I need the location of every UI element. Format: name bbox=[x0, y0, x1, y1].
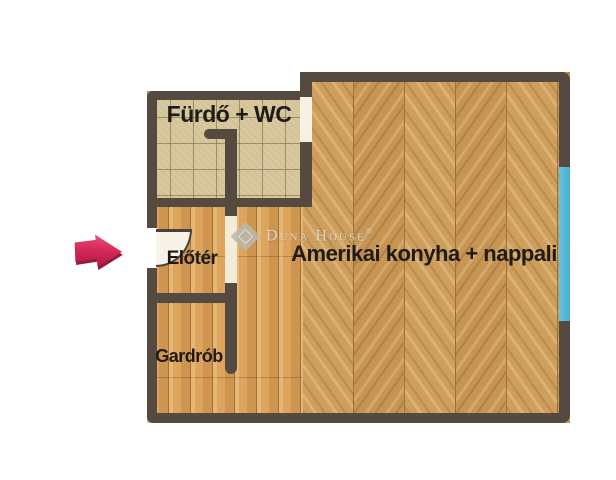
wall-wardrobe-top bbox=[147, 293, 237, 303]
hall-label: Előtér bbox=[159, 249, 225, 269]
living-room-label: Amerikai konyha + nappali bbox=[290, 242, 558, 265]
wall-living-top bbox=[300, 72, 570, 82]
brand-diamond-icon bbox=[231, 222, 261, 252]
wall-bathroom-top bbox=[147, 91, 312, 100]
window-marker bbox=[559, 167, 570, 321]
wall-hall-right-upper bbox=[225, 129, 237, 216]
bathroom-label: Fürdő + WC bbox=[150, 102, 308, 126]
wall-bottom bbox=[147, 413, 570, 423]
floor-plan-canvas: Duna House® Fürdő + WC Amerikai konyha +… bbox=[0, 0, 616, 480]
registered-mark: ® bbox=[366, 227, 372, 236]
entrance-arrow-icon bbox=[73, 233, 124, 269]
wardrobe-label: Gardrób bbox=[150, 347, 228, 366]
